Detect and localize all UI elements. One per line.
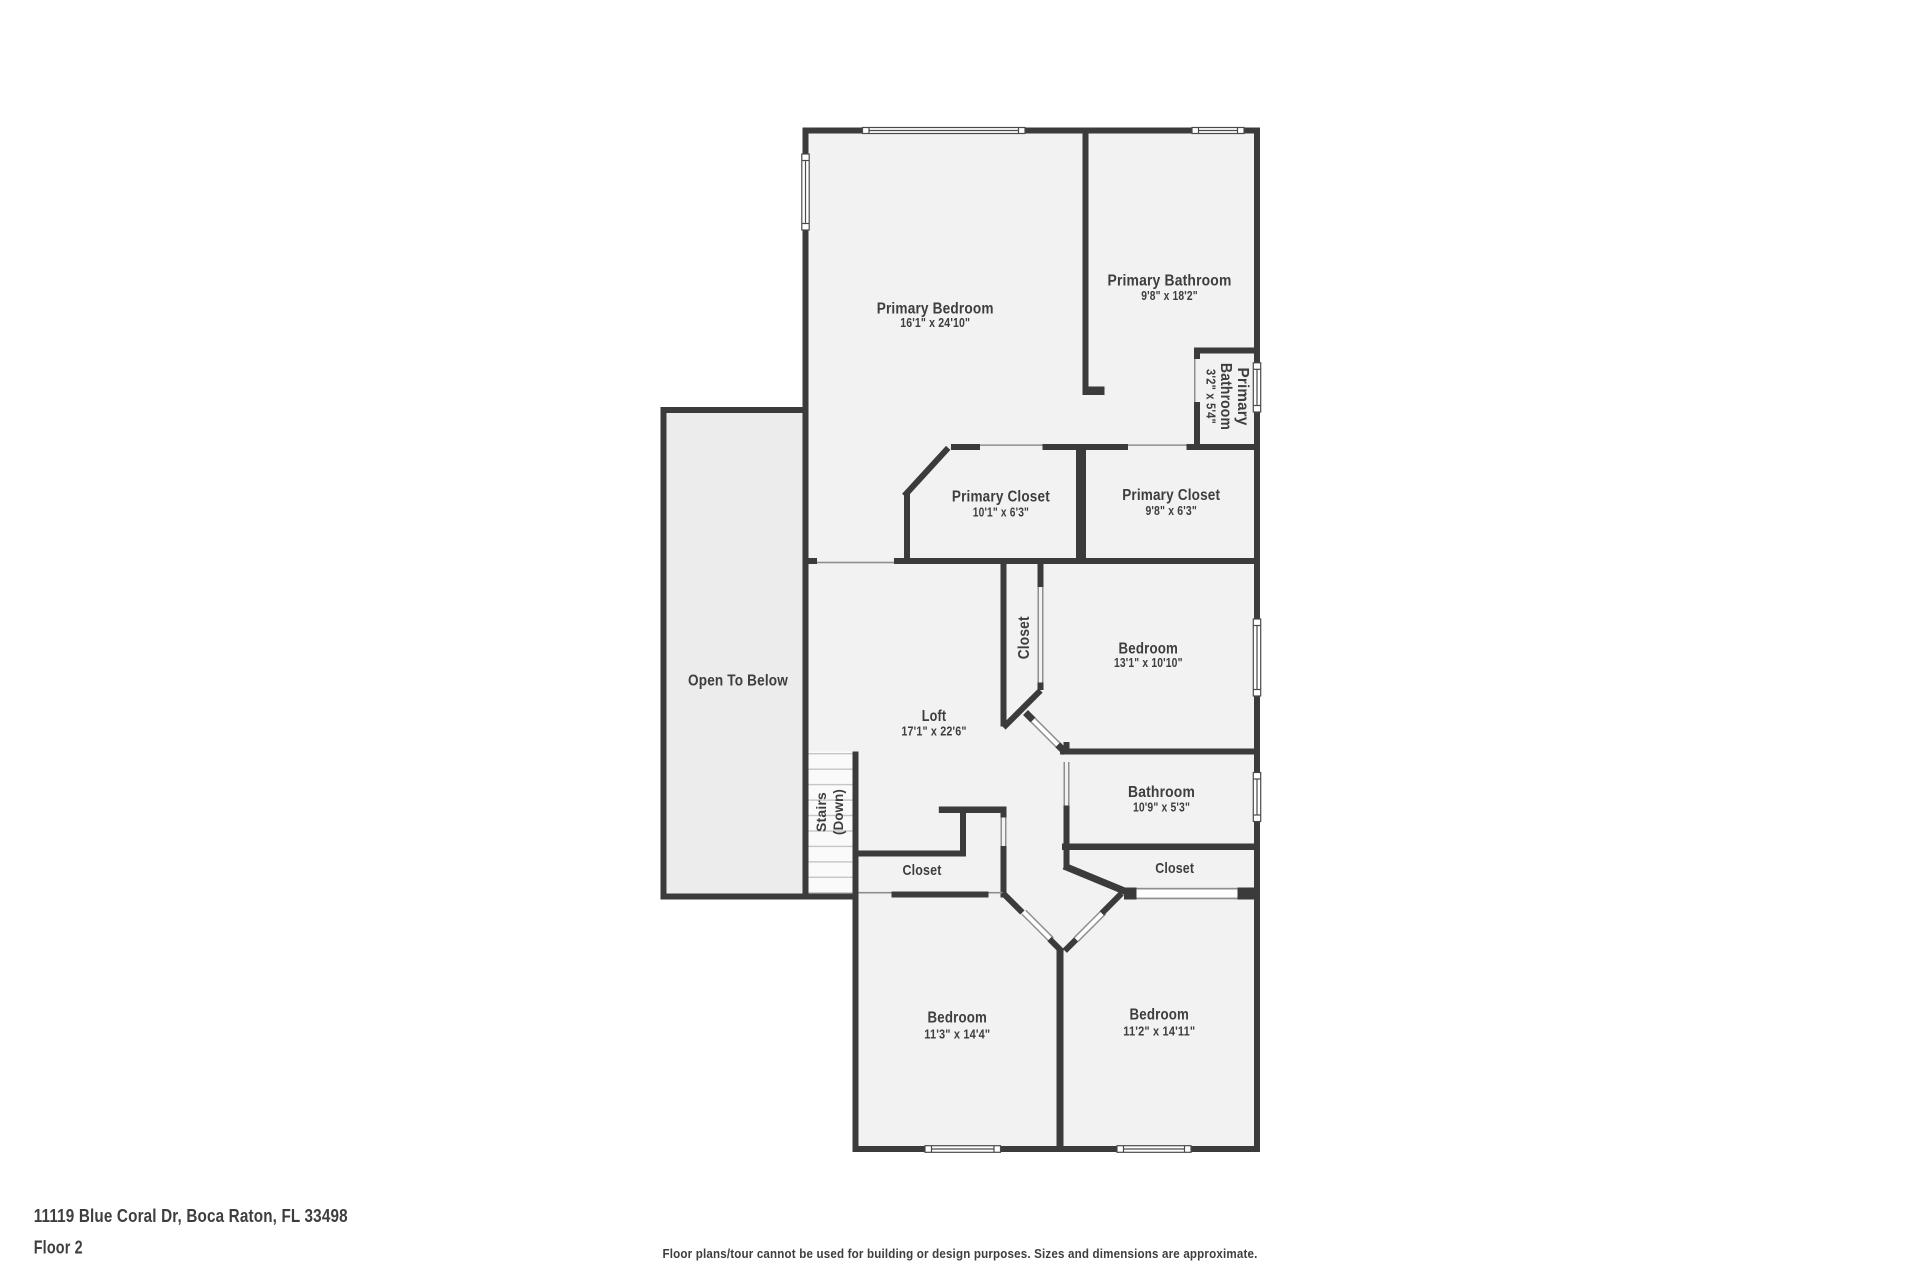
svg-text:3'2" x 5'4": 3'2" x 5'4" — [1204, 369, 1218, 424]
svg-text:17'1" x 22'6": 17'1" x 22'6" — [901, 724, 966, 739]
svg-text:Bedroom: Bedroom — [928, 1010, 988, 1027]
svg-text:Floor 2: Floor 2 — [34, 1237, 83, 1258]
svg-text:Open To Below: Open To Below — [688, 672, 788, 689]
svg-text:13'1" x 10'10": 13'1" x 10'10" — [1114, 655, 1183, 670]
svg-text:11'3" x 14'4": 11'3" x 14'4" — [924, 1027, 990, 1042]
svg-text:Closet: Closet — [903, 862, 942, 879]
svg-text:(Down): (Down) — [831, 789, 846, 835]
svg-text:10'9" x 5'3": 10'9" x 5'3" — [1133, 800, 1190, 815]
svg-text:Primary Bathroom: Primary Bathroom — [1108, 272, 1232, 289]
svg-text:Closet: Closet — [1155, 860, 1194, 877]
svg-text:Bedroom: Bedroom — [1130, 1007, 1190, 1024]
svg-text:9'8" x 18'2": 9'8" x 18'2" — [1141, 288, 1198, 303]
svg-text:Primary: Primary — [1234, 368, 1251, 426]
svg-text:Loft: Loft — [922, 708, 947, 725]
svg-text:11119 Blue Coral Dr, Boca Rato: 11119 Blue Coral Dr, Boca Raton, FL 3349… — [34, 1205, 348, 1226]
svg-text:9'8" x 6'3": 9'8" x 6'3" — [1145, 503, 1197, 518]
svg-text:Primary Closet: Primary Closet — [1122, 487, 1220, 504]
svg-text:Primary Closet: Primary Closet — [952, 489, 1050, 506]
svg-text:Stairs: Stairs — [814, 792, 829, 832]
svg-text:Floor plans/tour cannot be use: Floor plans/tour cannot be used for buil… — [663, 1246, 1258, 1261]
svg-text:Closet: Closet — [1016, 616, 1033, 659]
svg-text:10'1" x 6'3": 10'1" x 6'3" — [973, 505, 1029, 520]
svg-text:16'1" x 24'10": 16'1" x 24'10" — [900, 315, 970, 330]
svg-text:11'2" x 14'11": 11'2" x 14'11" — [1123, 1024, 1195, 1039]
svg-text:Bathroom: Bathroom — [1217, 363, 1234, 430]
